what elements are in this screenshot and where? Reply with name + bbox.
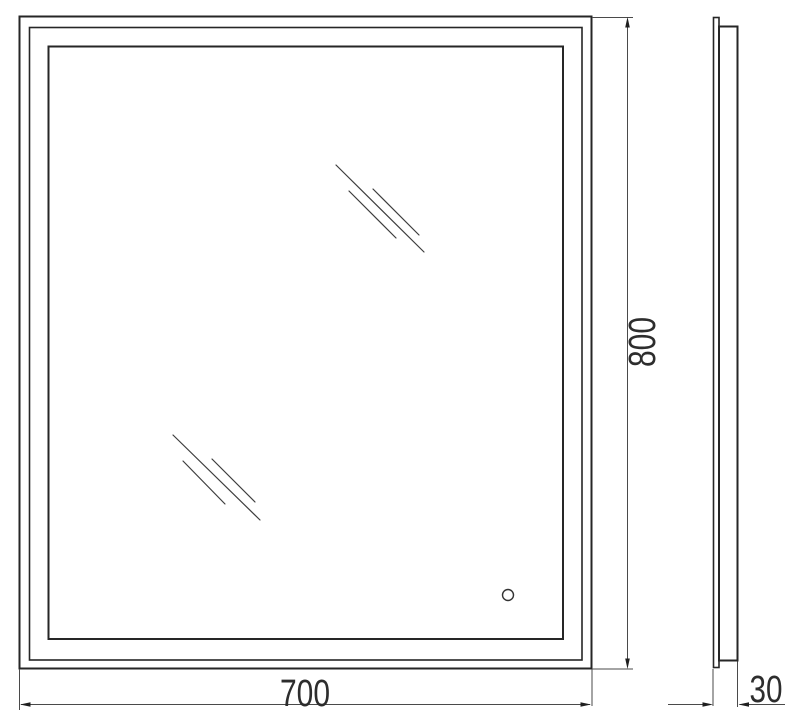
glass-shine-icon-lower [173,435,260,520]
dimension-arrowhead-icon-up [625,17,630,28]
mirror-glass-edge [49,47,564,640]
height-dimension-label: 800 [622,317,664,367]
depth-dimension-label: 30 [750,669,783,711]
touch-sensor-icon [503,590,514,601]
dimension-arrowhead-icon-right [581,702,592,707]
glass-shine-icon-upper [336,165,424,252]
front-view [20,17,592,669]
side-view-body-panel [719,27,738,661]
mirror-technical-drawing: 800 700 30 [0,0,800,727]
dimension-arrowhead-icon-left [20,702,31,707]
width-dimension-label: 700 [280,673,330,715]
dimension-arrowhead-icon-down [625,659,630,670]
mirror-outer-frame [20,17,592,669]
dimension-arrowhead-icon-right-pointing [703,702,714,707]
width-dimension: 700 [20,669,593,715]
height-dimension: 800 [592,17,664,669]
depth-dimension: 30 [668,662,785,712]
drawing-canvas: 800 700 30 [0,0,800,727]
dimension-arrowhead-icon-left-pointing [739,702,750,707]
mirror-led-border [30,28,583,661]
side-view [714,18,738,668]
